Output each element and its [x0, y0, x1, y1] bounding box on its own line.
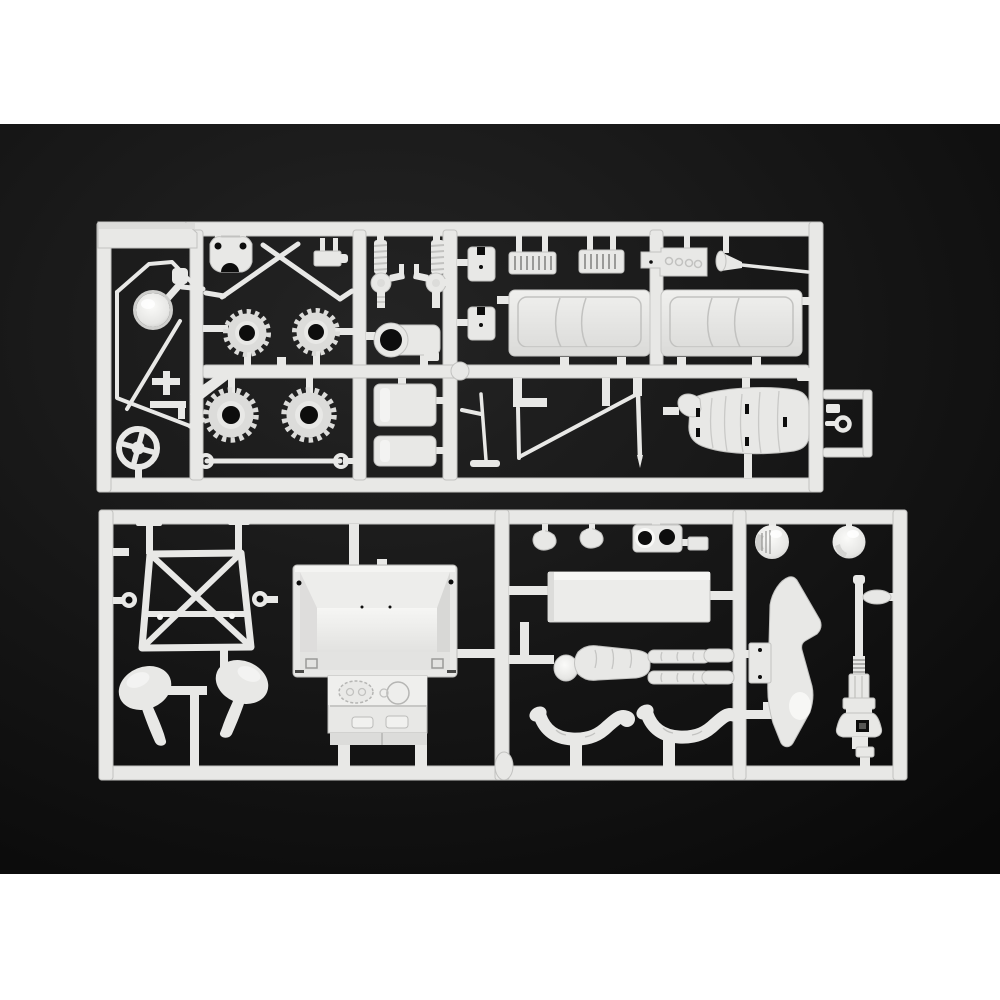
fuel-tank-upper — [374, 384, 436, 426]
sprue-boss — [495, 752, 513, 780]
bucket-seat — [678, 388, 809, 454]
driver-helmet-open — [755, 525, 789, 559]
product-photo — [0, 0, 1000, 1000]
suspension-bracket — [210, 237, 252, 272]
floor-panel — [548, 572, 710, 622]
photo-canvas — [0, 0, 1000, 1000]
radiator-grille-left — [509, 252, 556, 274]
engine-cover-panel-right — [661, 290, 802, 356]
sprue-boss — [451, 362, 469, 380]
top-white-band — [0, 0, 1000, 124]
mounting-plate-upper — [468, 247, 495, 281]
mounting-plate-lower — [468, 307, 495, 340]
radiator-grille-right — [579, 250, 624, 273]
gearbox-housing — [374, 323, 440, 361]
driver-helmet-closed — [833, 526, 866, 559]
fuel-tank-lower — [374, 436, 436, 466]
bottom-white-band — [0, 874, 1000, 1000]
engine-cover-panel-left — [509, 290, 650, 356]
